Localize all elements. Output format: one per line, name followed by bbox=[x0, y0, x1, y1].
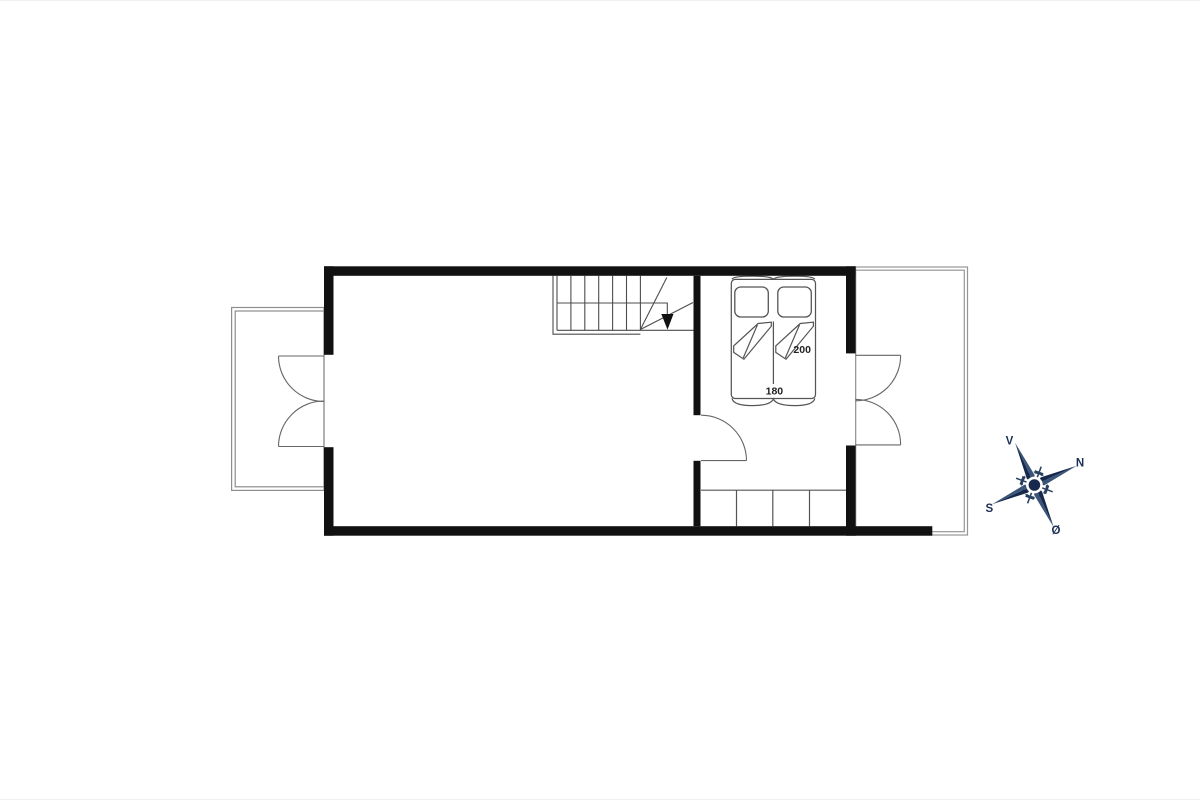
svg-text:V: V bbox=[1006, 435, 1014, 447]
svg-text:N: N bbox=[1076, 458, 1084, 470]
svg-text:180: 180 bbox=[766, 385, 784, 397]
svg-text:S: S bbox=[985, 503, 993, 515]
svg-text:200: 200 bbox=[793, 344, 811, 356]
svg-text:Ø: Ø bbox=[1052, 525, 1061, 537]
